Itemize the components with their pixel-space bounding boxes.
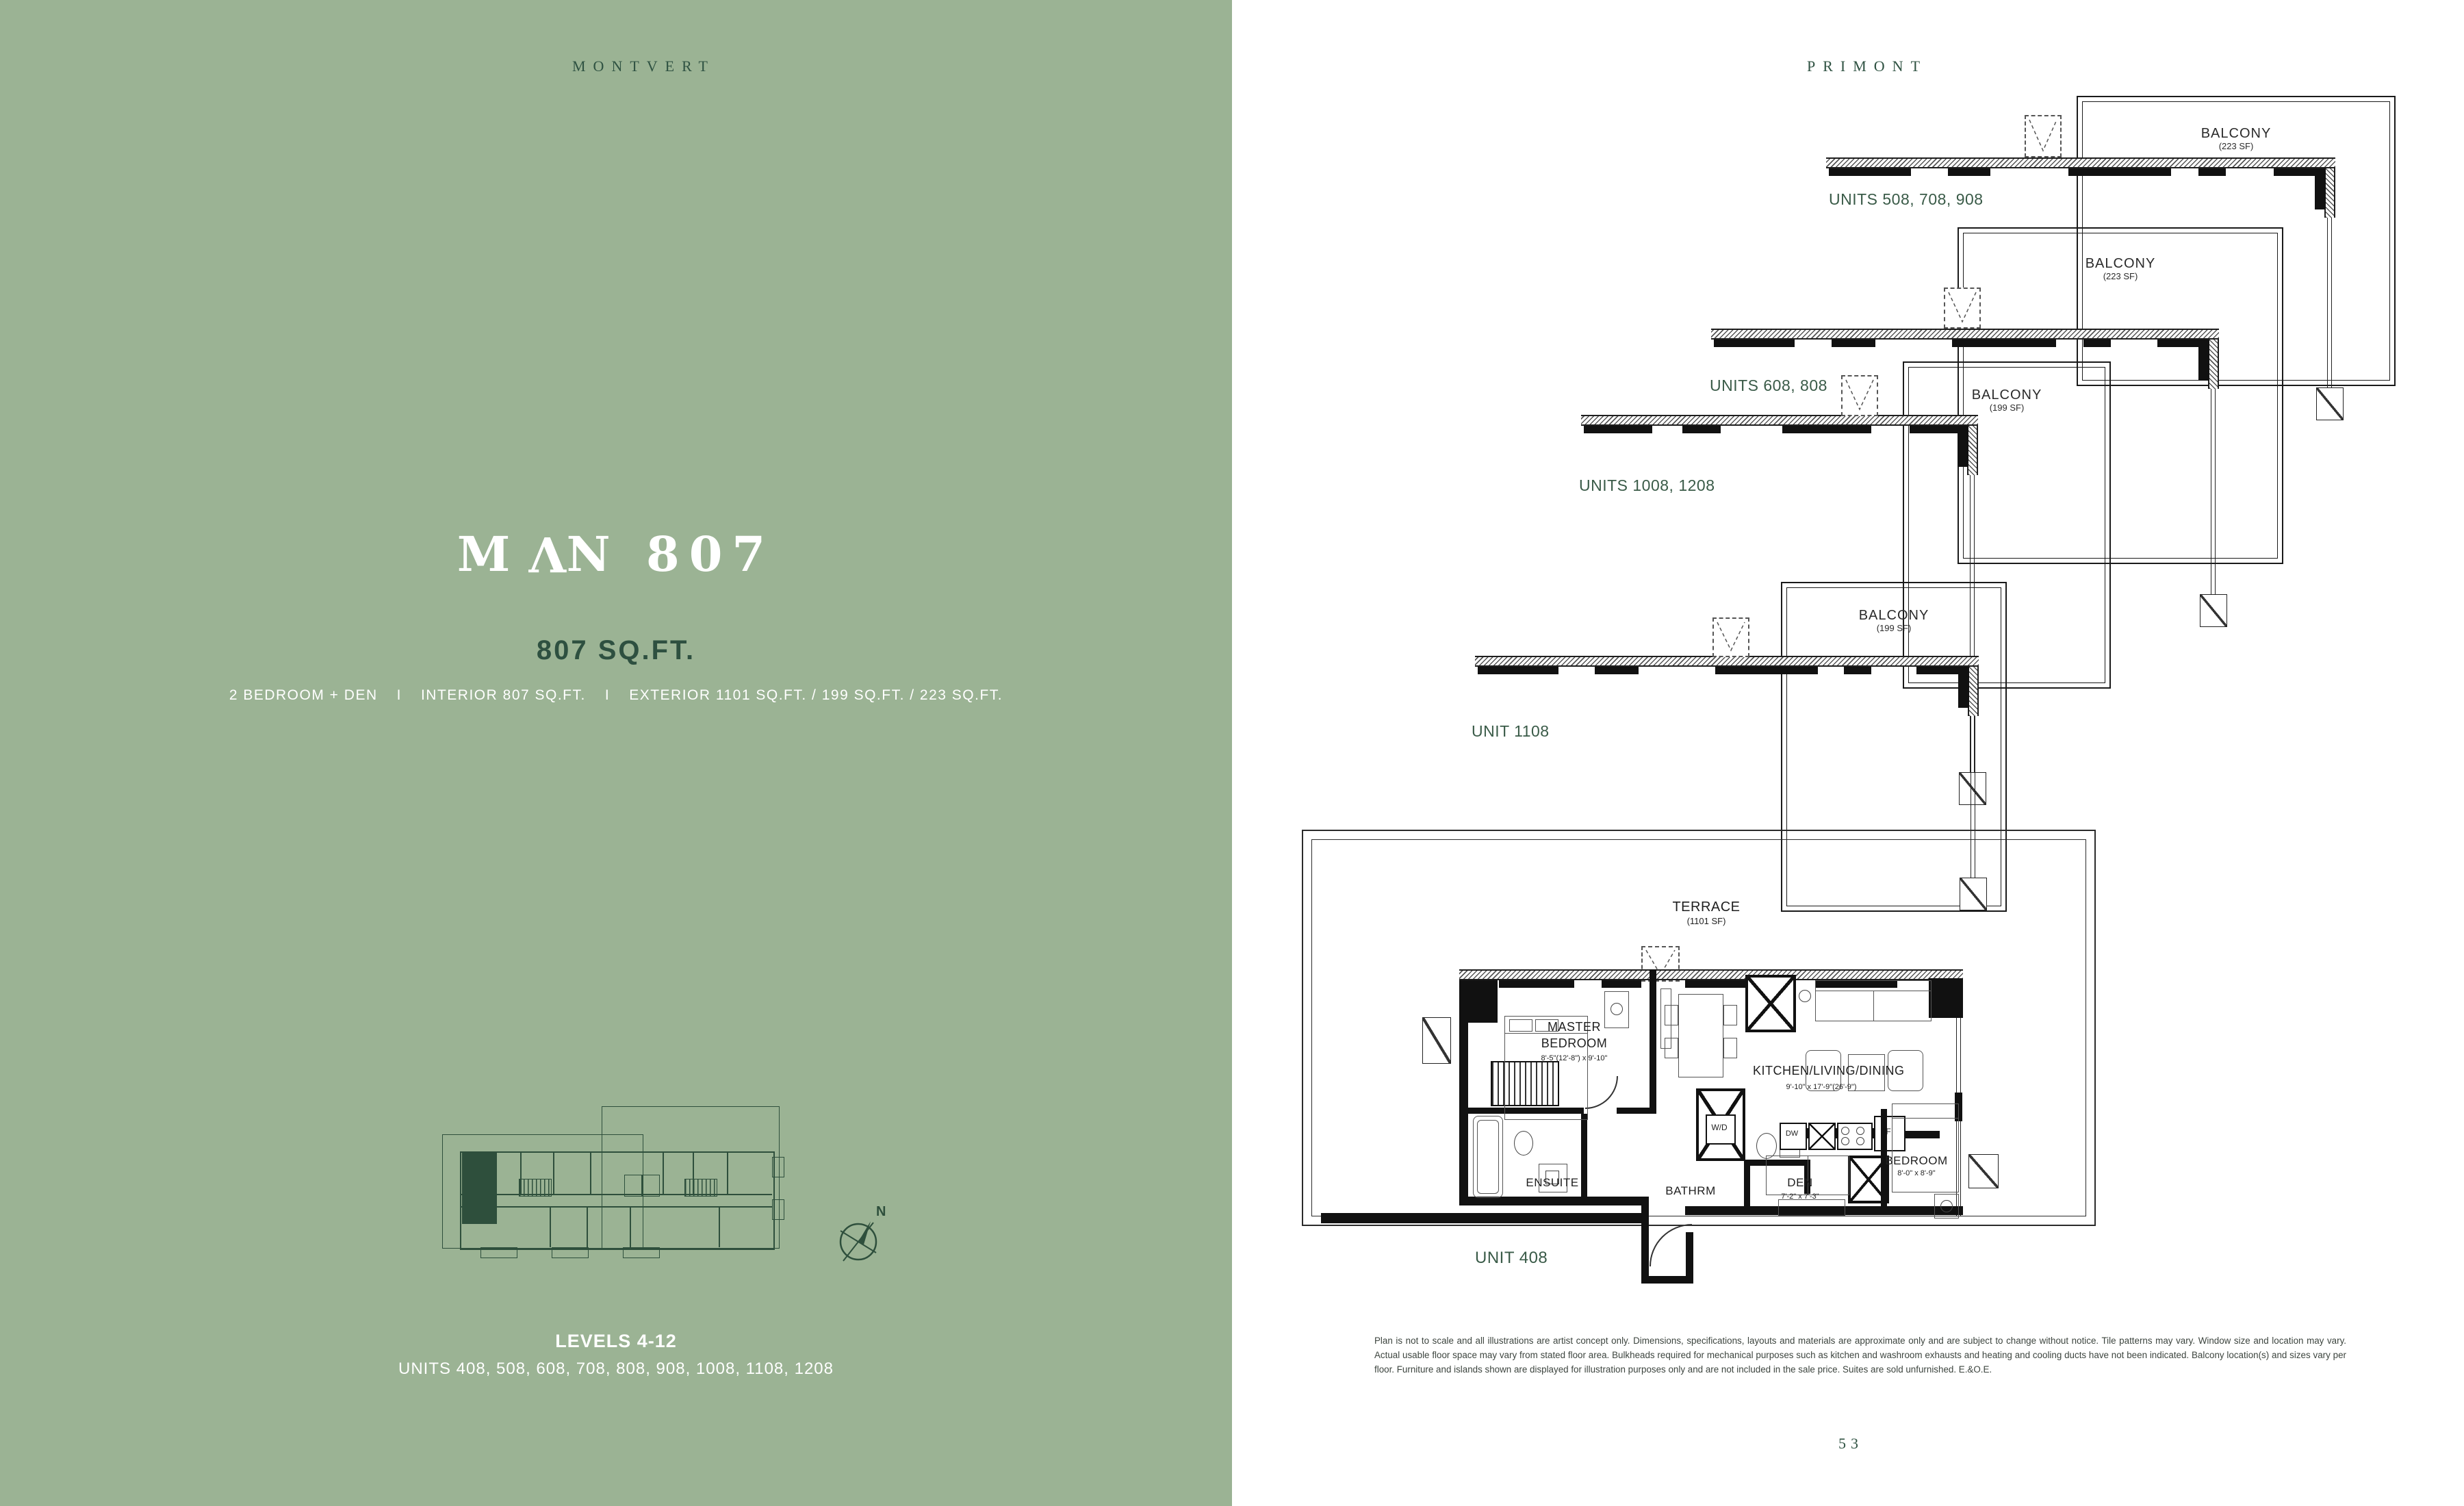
mini-plan-label: UNIT 1108 — [1472, 722, 1550, 741]
spec-line: 2 BEDROOM + DENIINTERIOR 807 SQ.FT.IEXTE… — [0, 687, 1232, 704]
bathroom-wall-left — [1744, 1164, 1750, 1212]
burner — [1856, 1137, 1864, 1145]
window-segment — [1844, 667, 1871, 674]
bedroom-dim: 8'-0" x 8'-9" — [1875, 1169, 1958, 1177]
balcony-label: BALCONY — [2078, 126, 2394, 142]
compass-n-label: N — [876, 1204, 886, 1219]
key-plan-divider — [550, 1206, 551, 1247]
window-segment — [1602, 980, 1641, 988]
balcony-area: (223 SF) — [2078, 141, 2394, 151]
plan-title-flipped-v: V — [519, 526, 566, 583]
key-plan-balcony-stub — [552, 1247, 589, 1258]
exterior-wall — [1711, 329, 2219, 340]
shaft-x-box — [1745, 975, 1796, 1032]
spec-interior: INTERIOR 807 SQ.FT. — [421, 687, 586, 703]
window-break-box — [2316, 387, 2344, 420]
window-break-box — [2200, 594, 2227, 627]
bedroom-tv-unit — [1934, 1194, 1959, 1218]
spec-separator-2: I — [605, 687, 610, 703]
dining-table — [1678, 994, 1723, 1077]
right-brand-header: PRIMONT — [1807, 58, 1927, 75]
dining-chair — [1723, 1038, 1737, 1058]
window-segment — [2068, 168, 2171, 176]
exterior-wall-top — [1459, 969, 1963, 980]
window-segment — [1832, 340, 1875, 347]
window-break-box — [1968, 1154, 1999, 1188]
key-plan-wing-box — [772, 1157, 784, 1177]
partition-master-bottom-2 — [1617, 1108, 1656, 1114]
terrace-edge-wall — [1321, 1213, 1643, 1223]
burner — [1856, 1127, 1864, 1135]
key-plan-stair-box — [684, 1179, 717, 1197]
dining-chair — [1665, 1005, 1678, 1025]
balcony-area: (199 SF) — [1782, 623, 2005, 633]
symbol-circle — [1610, 1003, 1623, 1015]
bed-line — [1892, 1118, 1958, 1119]
window-segment — [1715, 667, 1818, 674]
key-plan-divider — [587, 1206, 588, 1247]
area-title: 807 SQ.FT. — [0, 635, 1232, 666]
ensuite-label: ENSUITE — [1504, 1176, 1600, 1190]
key-plan-divider — [727, 1151, 728, 1194]
window-segment — [1948, 168, 1990, 176]
terrace-label: TERRACE — [1652, 899, 1761, 915]
corner-wall-fill — [1958, 667, 1969, 708]
den-label: DEN — [1766, 1176, 1834, 1190]
plan-title-prefix: M — [457, 526, 520, 583]
key-plan-wing-box — [772, 1199, 784, 1220]
master-bedroom-label-2: BEDROOM — [1526, 1036, 1622, 1051]
key-plan-divider — [590, 1151, 591, 1194]
window-segment — [1595, 667, 1639, 674]
vent-marker — [1712, 617, 1749, 657]
cooktop-box — [1837, 1123, 1873, 1150]
side-glazing-line — [2327, 218, 2332, 389]
balcony-label: BALCONY — [1904, 387, 2109, 403]
key-plan-divider — [663, 1151, 664, 1194]
units-list: UNITS 408, 508, 608, 708, 808, 908, 1008… — [0, 1360, 1232, 1379]
window-segment — [1952, 340, 2056, 347]
key-plan-corridor-line-top — [460, 1194, 772, 1195]
spec-exterior: EXTERIOR 1101 SQ.FT. / 199 SQ.FT. / 223 … — [629, 687, 1003, 703]
left-panel — [0, 0, 1232, 1506]
key-plan-divider — [630, 1206, 631, 1247]
burner — [1841, 1137, 1849, 1145]
balcony-label: BALCONY — [1959, 256, 2282, 272]
key-plan-divider — [553, 1151, 554, 1194]
left-brand-header: MONTVERT — [572, 58, 715, 75]
side-glazing-line — [2211, 389, 2216, 594]
corner-wall — [2208, 340, 2219, 389]
key-plan-stair-box — [519, 1179, 552, 1197]
corner-wall — [2324, 168, 2335, 218]
window-segment — [1478, 667, 1558, 674]
terrace-area: (1101 SF) — [1652, 916, 1761, 926]
balcony-area: (223 SF) — [1959, 271, 2282, 281]
window-segment — [1499, 980, 1574, 988]
window-segment — [1782, 426, 1871, 433]
dining-chair — [1665, 1038, 1678, 1058]
mini-plan-label: UNITS 1008, 1208 — [1579, 476, 1715, 495]
vent-marker — [2025, 115, 2062, 157]
ensuite-tub — [1473, 1116, 1503, 1198]
exterior-wall — [1826, 157, 2335, 168]
bedroom-bed — [1892, 1103, 1959, 1192]
key-plan-elevator-box — [642, 1175, 660, 1197]
spec-bedrooms: 2 BEDROOM + DEN — [229, 687, 378, 703]
side-lamp — [1799, 990, 1811, 1002]
bedroom-label: BEDROOM — [1875, 1154, 1958, 1168]
key-plan-corridor-line-bottom — [460, 1206, 772, 1208]
partition-master-right — [1650, 969, 1656, 1112]
burner — [1841, 1127, 1849, 1135]
balcony-label: BALCONY — [1782, 608, 2005, 624]
tub-inner — [1477, 1120, 1499, 1194]
window-segment — [2198, 168, 2226, 176]
dining-chair — [1723, 1005, 1737, 1025]
bathroom-label: BATHRM — [1641, 1184, 1740, 1198]
key-plan-highlighted-unit — [462, 1153, 497, 1224]
window-break-box — [1422, 1017, 1451, 1064]
disclaimer-text: Plan is not to scale and all illustratio… — [1374, 1333, 2346, 1377]
vestibule-wall-left — [1641, 1197, 1649, 1283]
key-plan-elevator-box — [624, 1175, 642, 1197]
corner-wall-fill — [1929, 978, 1963, 1018]
dishwasher-label: DW — [1780, 1129, 1804, 1138]
symbol-circle — [1940, 1200, 1953, 1212]
window-segment — [1584, 426, 1652, 433]
den-dim: 7'-2" x 7'-3" — [1766, 1192, 1834, 1201]
sofa — [1815, 980, 1932, 1021]
entry-door-arc — [1650, 1224, 1692, 1266]
key-plan-divider — [719, 1206, 720, 1247]
corner-wall-fill — [2315, 168, 2326, 209]
master-bedroom-dim: 8'-5"(12'-8") x 9'-10" — [1526, 1054, 1622, 1062]
compass-icon: N — [824, 1201, 899, 1273]
corner-wall-fill — [1958, 426, 1968, 467]
washer-dryer-label: W/D — [1706, 1123, 1733, 1132]
window-segment — [1682, 426, 1721, 433]
plan-title-suffix: N 807 — [567, 526, 775, 583]
den-desk — [1778, 1199, 1845, 1216]
mini-plan-label: UNITS 608, 808 — [1710, 376, 1827, 395]
mini-plan-label: UNITS 508, 708, 908 — [1829, 190, 1984, 209]
kitchen-sink-box — [1808, 1123, 1836, 1150]
exterior-wall-left — [1459, 980, 1468, 1199]
spec-separator-1: I — [397, 687, 402, 703]
brochure-page: MONTVERT MVN 807 807 SQ.FT. 2 BEDROOM + … — [0, 0, 2464, 1506]
corner-wall — [1968, 667, 1979, 716]
kitchen-living-dining-label: KITCHEN/LIVING/DINING — [1753, 1064, 1890, 1078]
ensuite-toilet — [1514, 1131, 1533, 1156]
key-plan-balcony-stub — [623, 1247, 660, 1258]
plan-title: MVN 807 — [0, 526, 1232, 583]
levels-label: LEVELS 4-12 — [0, 1331, 1232, 1352]
vent-marker — [1944, 288, 1981, 329]
key-plan-balcony-stub — [480, 1247, 517, 1258]
page-number: 53 — [1838, 1435, 1863, 1453]
sofa-cushion-line — [1873, 991, 1874, 1021]
window-segment — [1910, 426, 1963, 433]
balcony-area: (199 SF) — [1904, 403, 2109, 413]
master-bedroom-label-1: MASTER — [1526, 1020, 1622, 1034]
vent-marker — [1841, 375, 1878, 416]
kitchen-living-dining-dim: 9'-10" x 17'-9"(26'-9") — [1753, 1083, 1890, 1091]
exterior-wall — [1581, 415, 1978, 426]
window-segment — [2083, 340, 2111, 347]
window-segment — [1829, 168, 1911, 176]
corner-wall-fill — [2198, 340, 2209, 381]
corner-wall — [1967, 426, 1978, 475]
window-segment — [1714, 340, 1795, 347]
main-plan-label: UNIT 408 — [1475, 1249, 1548, 1268]
